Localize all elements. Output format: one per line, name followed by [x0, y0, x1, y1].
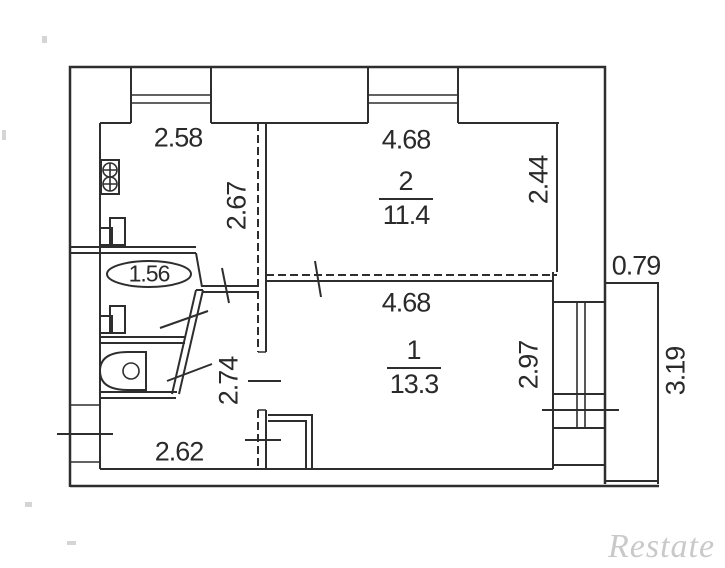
window-icon-kitchen — [131, 67, 211, 123]
room1-area: 13.3 — [390, 371, 439, 398]
scan-artifacts — [2, 36, 76, 545]
room1-number: 1 — [406, 337, 421, 364]
balcony — [605, 283, 658, 484]
kitchen-sink-icon — [100, 218, 125, 245]
dim-room2-depth: 2.44 — [526, 156, 553, 205]
watermark: Restate — [608, 530, 723, 564]
dim-room2-width: 4.68 — [382, 127, 431, 154]
inner-wall-lines — [100, 123, 559, 469]
dim-balcony-length: 3.19 — [663, 347, 690, 396]
room2-area: 11.4 — [383, 202, 430, 229]
floorplan-drawing — [0, 0, 725, 568]
closet — [268, 415, 312, 469]
washbasin-icon — [100, 306, 125, 333]
room2-number: 2 — [398, 168, 413, 195]
window-icon-room2 — [368, 67, 458, 123]
dim-shaft-width: 0.79 — [612, 253, 661, 280]
stove-icon — [101, 160, 119, 194]
room-partition-wall — [266, 275, 557, 281]
dim-room1-width: 4.68 — [382, 290, 431, 317]
dim-hall-width: 2.62 — [155, 439, 204, 466]
floorplan-canvas: 2.58 4.68 2.67 2.44 0.79 4.68 2.97 2.74 … — [0, 0, 725, 568]
bathroom-area-value: 1.56 — [129, 263, 170, 286]
dim-kitchen-depth: 2.67 — [224, 182, 251, 231]
central-wall — [258, 123, 266, 469]
bathtub-icon — [100, 352, 146, 390]
room2-label: 2 11.4 — [379, 168, 433, 229]
dim-hall-depth: 2.74 — [216, 357, 243, 406]
room1-label: 1 13.3 — [387, 337, 441, 398]
dim-kitchen-width: 2.58 — [154, 125, 203, 152]
dim-room1-depth: 2.97 — [516, 341, 543, 390]
window-icon-balcony — [553, 302, 605, 465]
